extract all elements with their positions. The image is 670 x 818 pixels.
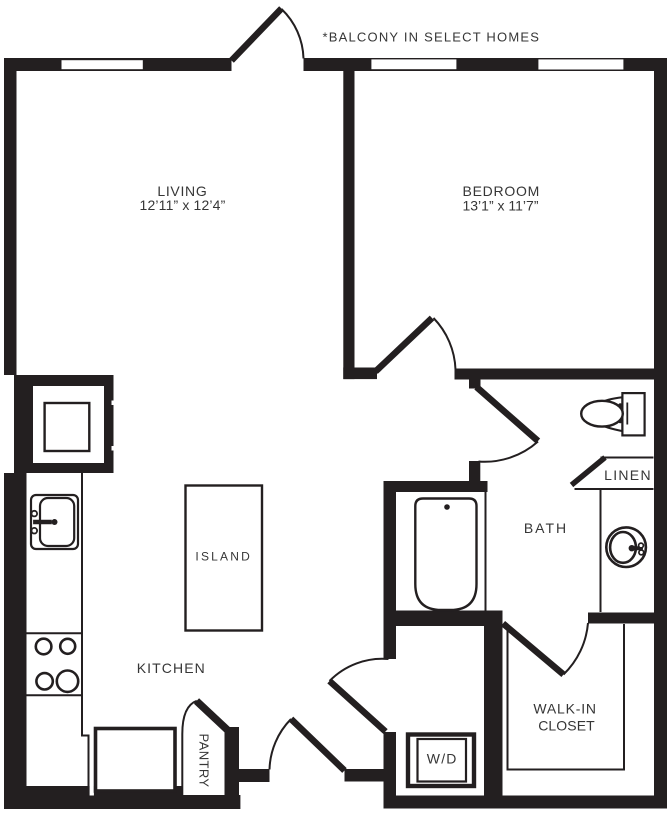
svg-text:LINEN: LINEN: [604, 467, 652, 483]
svg-text:PANTRY: PANTRY: [197, 734, 212, 788]
svg-text:KITCHEN: KITCHEN: [137, 660, 206, 676]
svg-text:ISLAND: ISLAND: [195, 550, 252, 564]
svg-text:BEDROOM: BEDROOM: [463, 183, 541, 199]
svg-text:W/D: W/D: [427, 751, 458, 767]
svg-text:13’1” x 11’7”: 13’1” x 11’7”: [462, 198, 538, 214]
svg-text:WALK-IN: WALK-IN: [533, 701, 596, 717]
svg-text:*BALCONY IN SELECT HOMES: *BALCONY IN SELECT HOMES: [323, 29, 541, 44]
svg-text:BATH: BATH: [524, 520, 568, 536]
svg-text:12’11” x 12’4”: 12’11” x 12’4”: [140, 197, 226, 213]
svg-text:CLOSET: CLOSET: [538, 718, 595, 734]
